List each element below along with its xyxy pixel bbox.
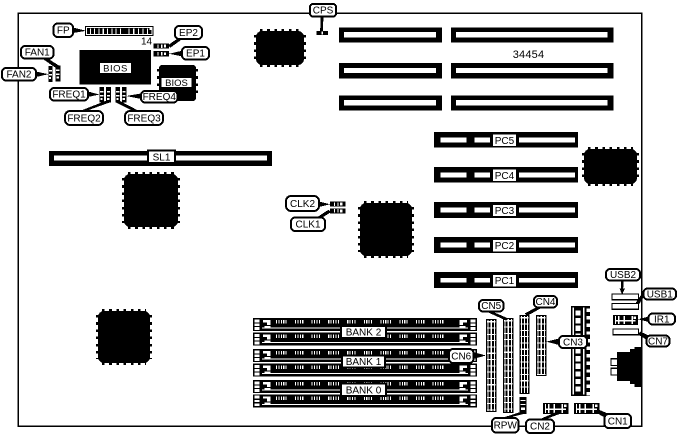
svg-text:IR1: IR1 [654,314,670,325]
svg-text:CN5: CN5 [481,301,501,312]
svg-text:USB2: USB2 [610,270,637,281]
svg-text:PC4: PC4 [495,171,515,182]
svg-text:EP2: EP2 [179,28,198,39]
svg-text:FREQ4: FREQ4 [143,92,177,103]
svg-text:CPS: CPS [313,6,334,17]
svg-text:34454: 34454 [513,49,545,61]
svg-text:PC5: PC5 [495,136,515,147]
svg-text:CN2: CN2 [530,422,550,433]
svg-text:PC1: PC1 [495,276,515,287]
svg-text:RPW: RPW [494,421,518,432]
svg-text:14: 14 [141,36,153,47]
svg-text:CN3: CN3 [563,337,583,348]
svg-text:BANK 0: BANK 0 [346,385,382,396]
svg-text:FREQ3: FREQ3 [127,113,161,124]
svg-text:CN4: CN4 [535,297,555,308]
svg-text:BANK 2: BANK 2 [346,328,382,339]
svg-text:PC3: PC3 [495,206,515,217]
svg-text:CN1: CN1 [608,416,628,427]
svg-text:CN6: CN6 [451,351,471,362]
svg-text:FAN2: FAN2 [6,70,31,81]
svg-text:FREQ1: FREQ1 [52,90,86,101]
svg-text:EP1: EP1 [186,49,205,60]
svg-text:USB1: USB1 [647,289,674,300]
svg-text:CLK2: CLK2 [290,199,315,210]
svg-text:CLK1: CLK1 [295,220,320,231]
svg-text:BIOS: BIOS [103,64,128,75]
svg-text:SL1: SL1 [153,152,171,163]
svg-text:FREQ2: FREQ2 [67,113,101,124]
svg-text:PC2: PC2 [495,241,515,252]
svg-text:FAN1: FAN1 [25,48,50,59]
svg-text:BANK 1: BANK 1 [346,357,382,368]
svg-text:BIOS: BIOS [165,78,188,89]
svg-text:FP: FP [57,26,70,37]
svg-text:CN7: CN7 [648,336,668,347]
